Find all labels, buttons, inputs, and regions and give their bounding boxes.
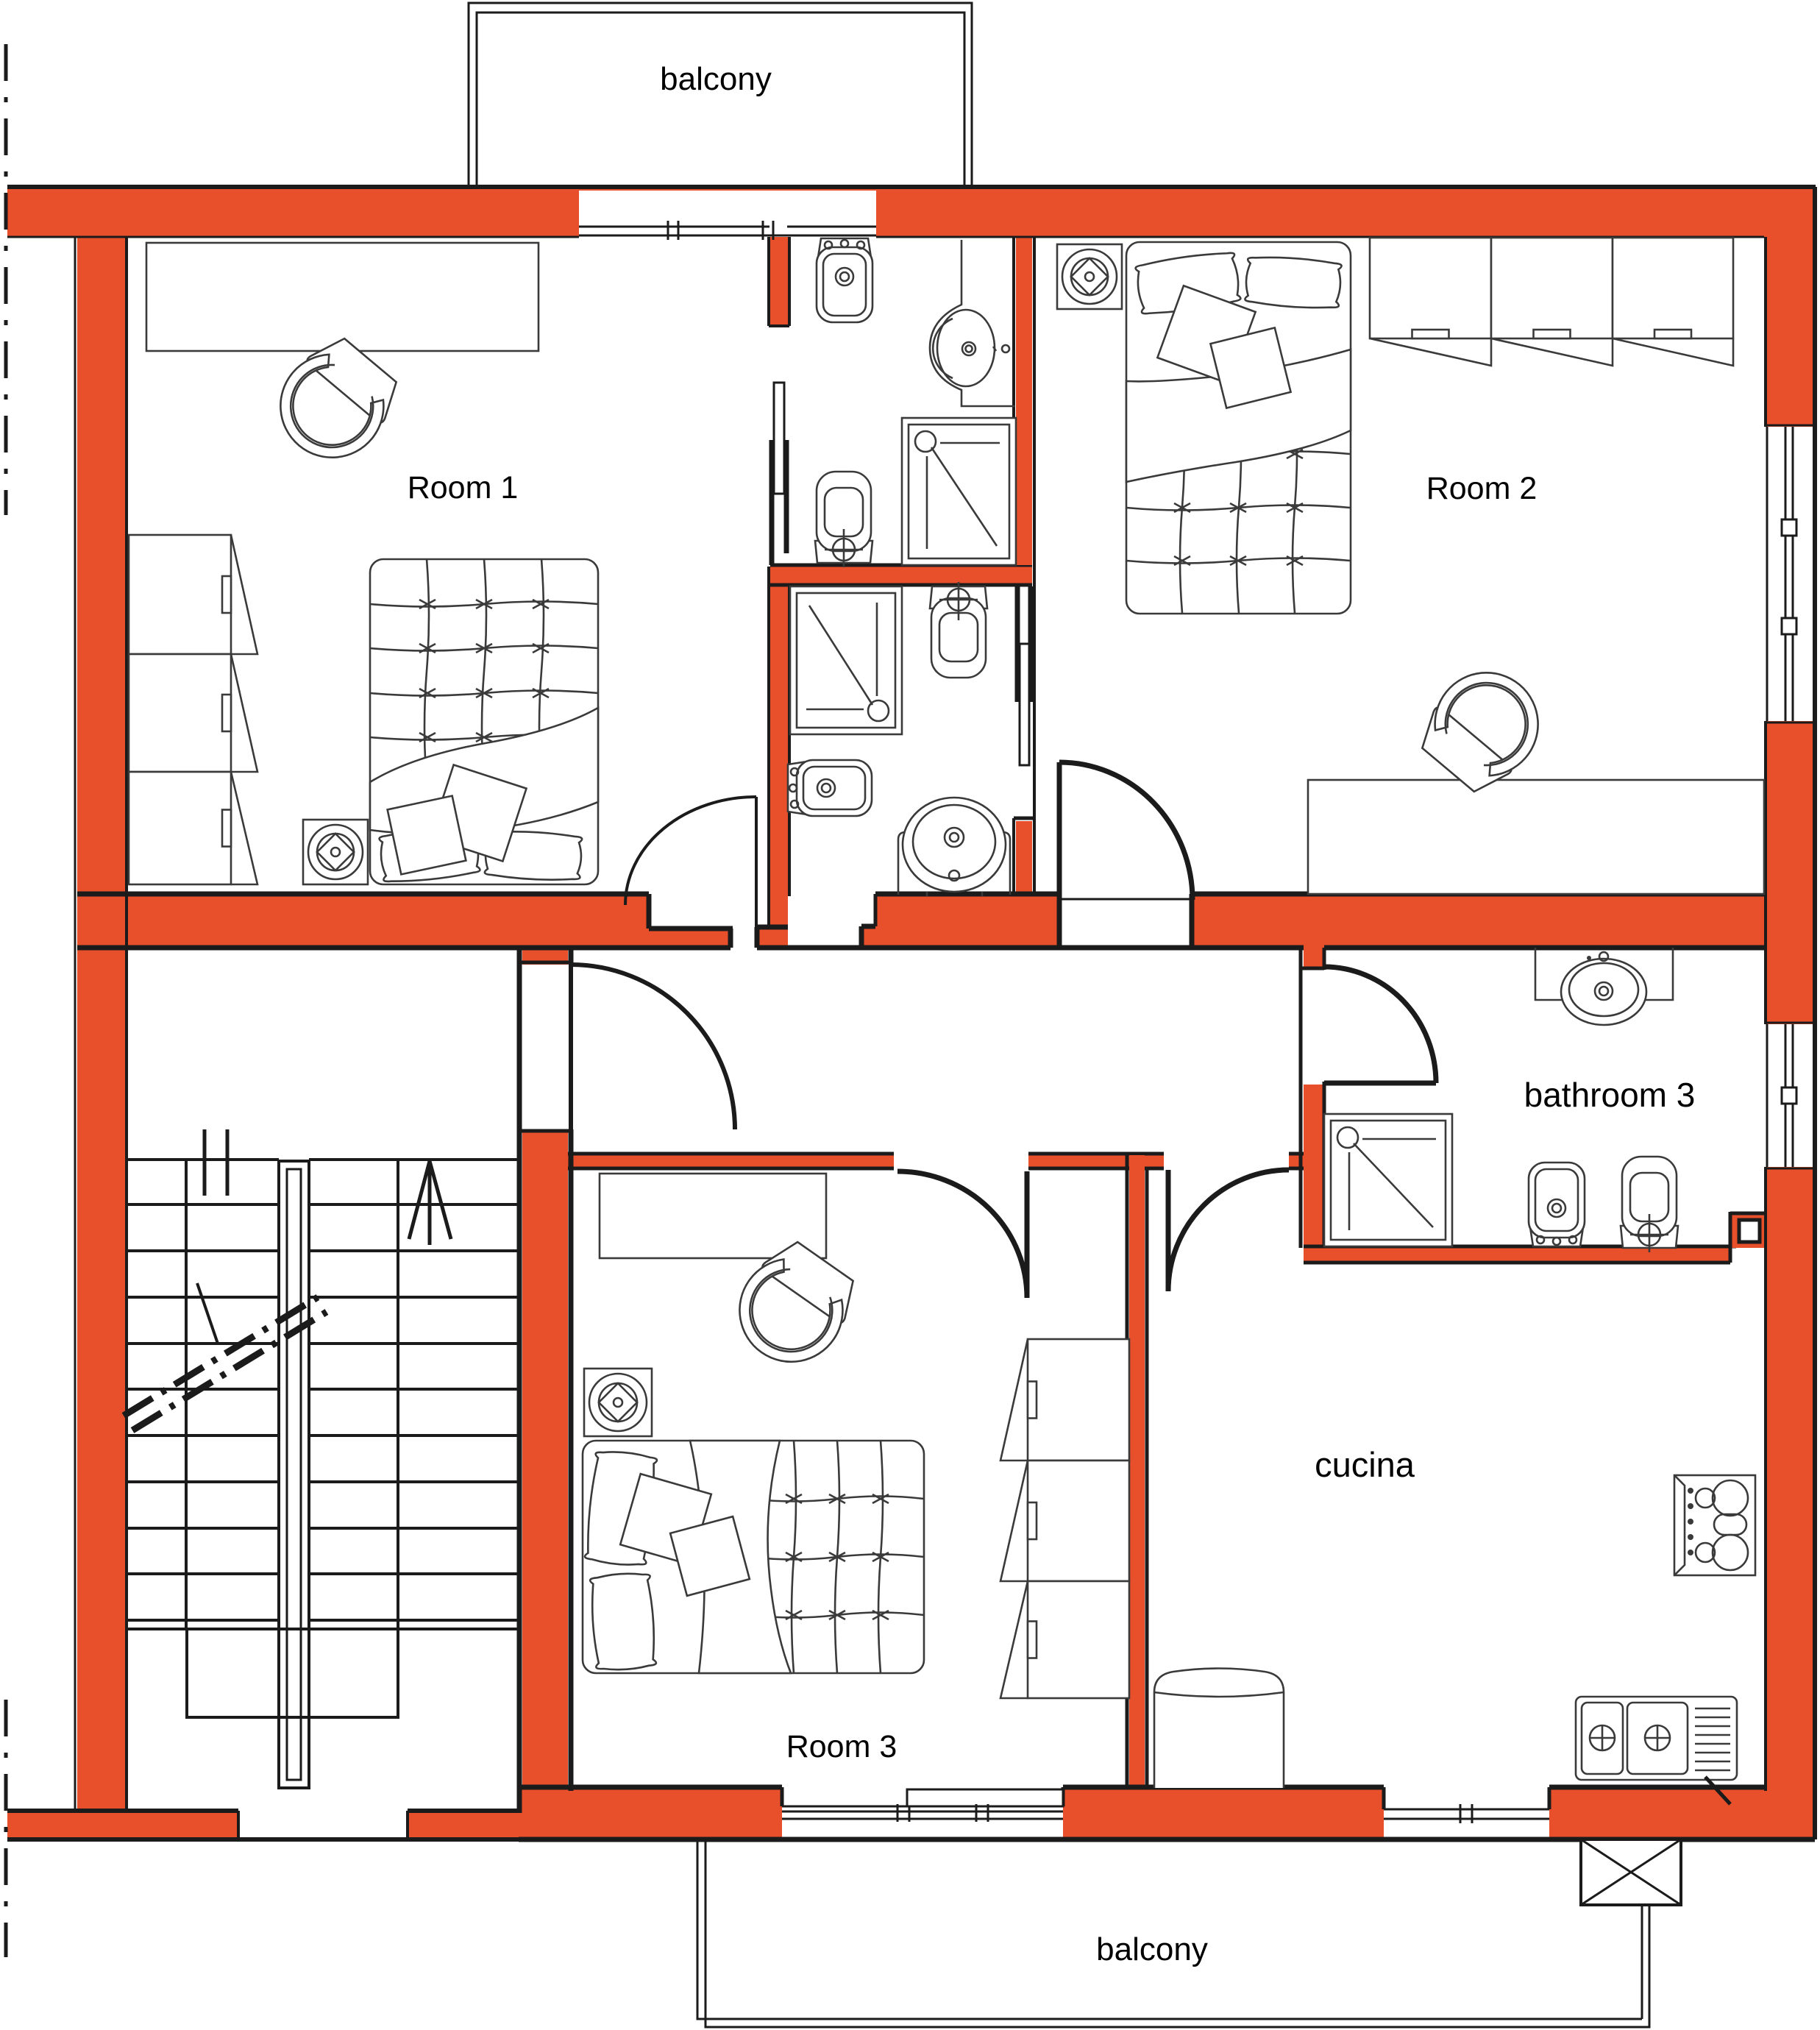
svg-text:balcony: balcony <box>1096 1931 1208 1967</box>
svg-text:bathroom 3: bathroom 3 <box>1524 1076 1696 1114</box>
svg-text:Room 3: Room 3 <box>786 1729 897 1764</box>
svg-text:cucina: cucina <box>1315 1445 1415 1484</box>
svg-text:Room 2: Room 2 <box>1426 471 1538 506</box>
svg-text:Room 1: Room 1 <box>408 470 519 505</box>
svg-text:balcony: balcony <box>660 61 772 97</box>
